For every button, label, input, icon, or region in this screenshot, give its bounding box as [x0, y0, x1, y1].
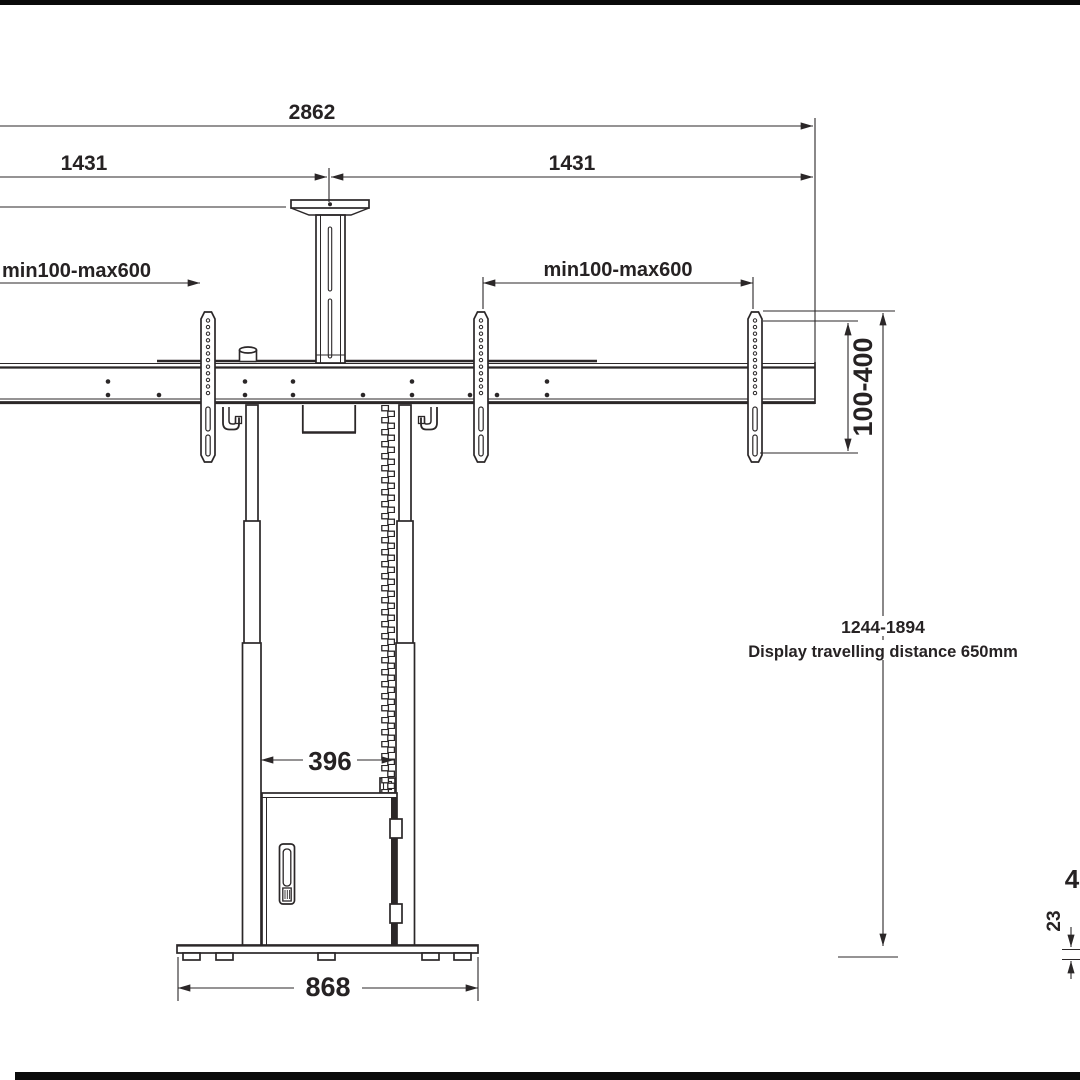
travel-distance-note: Display travelling distance 650mm	[748, 643, 1018, 661]
dim-label-inner-width: 396	[308, 746, 351, 776]
vesa-bracket-middle	[474, 312, 488, 462]
base-foot	[183, 953, 200, 960]
technical-drawing-page: 2862 1431 1431 min100-max600 min100-max6…	[0, 0, 1080, 1080]
cable-hook-right	[419, 407, 438, 430]
adjustment-knob	[240, 347, 257, 362]
pole-right-lower-tube	[396, 643, 415, 946]
dim-label-partial-right-edge: 4	[1065, 864, 1080, 894]
dimension-overall-height: 1244-1894 Display travelling distance 65…	[748, 311, 1018, 957]
dimension-half-widths: 1431 1431	[0, 152, 813, 202]
stand-dimension-drawing: 2862 1431 1431 min100-max600 min100-max6…	[0, 0, 1080, 1080]
pole-right-mid-tube	[397, 521, 413, 645]
equipment-cabinet	[262, 793, 402, 946]
crossbar	[0, 361, 815, 404]
dimension-base-width: 868	[178, 957, 478, 1002]
dim-label-vesa-right: min100-max600	[544, 259, 693, 281]
telescopic-pole-right	[396, 405, 415, 946]
cable-chain	[380, 405, 395, 793]
base-foot	[318, 953, 335, 960]
dim-label-bracket-height: 100-400	[848, 337, 878, 436]
base-foot	[454, 953, 471, 960]
base-foot	[216, 953, 233, 960]
cabinet-handle	[280, 844, 295, 904]
center-post	[291, 200, 369, 363]
telescopic-pole-left	[243, 405, 262, 946]
bottom-crop-strip	[15, 1072, 1080, 1080]
pole-right-upper-tube	[399, 405, 411, 523]
top-crop-strip	[0, 0, 1080, 5]
crossbar-body	[0, 364, 815, 402]
base-assembly	[177, 945, 478, 960]
dimension-inner-width: 396	[261, 746, 394, 776]
chain-links	[381, 405, 395, 792]
cabinet-hinge-bottom	[390, 904, 402, 923]
base-foot	[422, 953, 439, 960]
vesa-bracket-left	[201, 312, 215, 462]
dim-label-foot-height: 23	[1044, 910, 1065, 931]
lift-housing	[302, 405, 356, 433]
dimension-total-width: 2862	[0, 101, 815, 362]
post-top-pin	[328, 202, 332, 206]
dim-label-base-width: 868	[305, 972, 350, 1002]
cabinet-hinge-top	[390, 819, 402, 838]
dim-label-vesa-left: min100-max600	[2, 260, 151, 282]
cable-hook-left	[223, 407, 242, 430]
dimension-vesa-right: min100-max600	[483, 259, 753, 309]
post-top-plate-underside	[291, 208, 369, 215]
dim-label-total-width: 2862	[289, 101, 336, 124]
dim-label-height-range: 1244-1894	[841, 617, 925, 637]
dimension-vesa-left: min100-max600	[0, 260, 200, 283]
pole-left-mid-tube	[244, 521, 260, 645]
dimension-foot-height: 23	[1044, 910, 1080, 979]
dim-label-half-left: 1431	[61, 152, 108, 175]
pole-left-upper-tube	[246, 405, 258, 523]
vesa-bracket-right	[748, 312, 762, 462]
pole-left-lower-tube	[243, 643, 262, 946]
dim-label-half-right: 1431	[549, 152, 596, 175]
